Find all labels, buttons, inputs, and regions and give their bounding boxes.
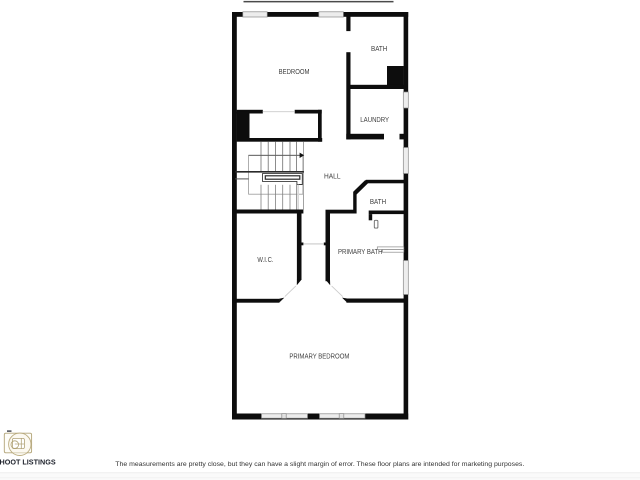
svg-text:BATH: BATH	[370, 197, 386, 206]
svg-text:BATH: BATH	[371, 44, 387, 53]
svg-text:The measurements are pretty cl: The measurements are pretty close, but t…	[115, 461, 524, 468]
svg-text:HALL: HALL	[324, 172, 341, 181]
svg-text:LAUNDRY: LAUNDRY	[360, 115, 389, 124]
svg-text:BEDROOM: BEDROOM	[279, 67, 310, 76]
svg-text:PRIMARY BEDROOM: PRIMARY BEDROOM	[289, 352, 349, 361]
svg-text:HOOT LISTINGS: HOOT LISTINGS	[0, 457, 56, 466]
svg-text:PRIMARY BATH: PRIMARY BATH	[338, 247, 383, 256]
svg-text:W.I.C.: W.I.C.	[257, 255, 273, 264]
